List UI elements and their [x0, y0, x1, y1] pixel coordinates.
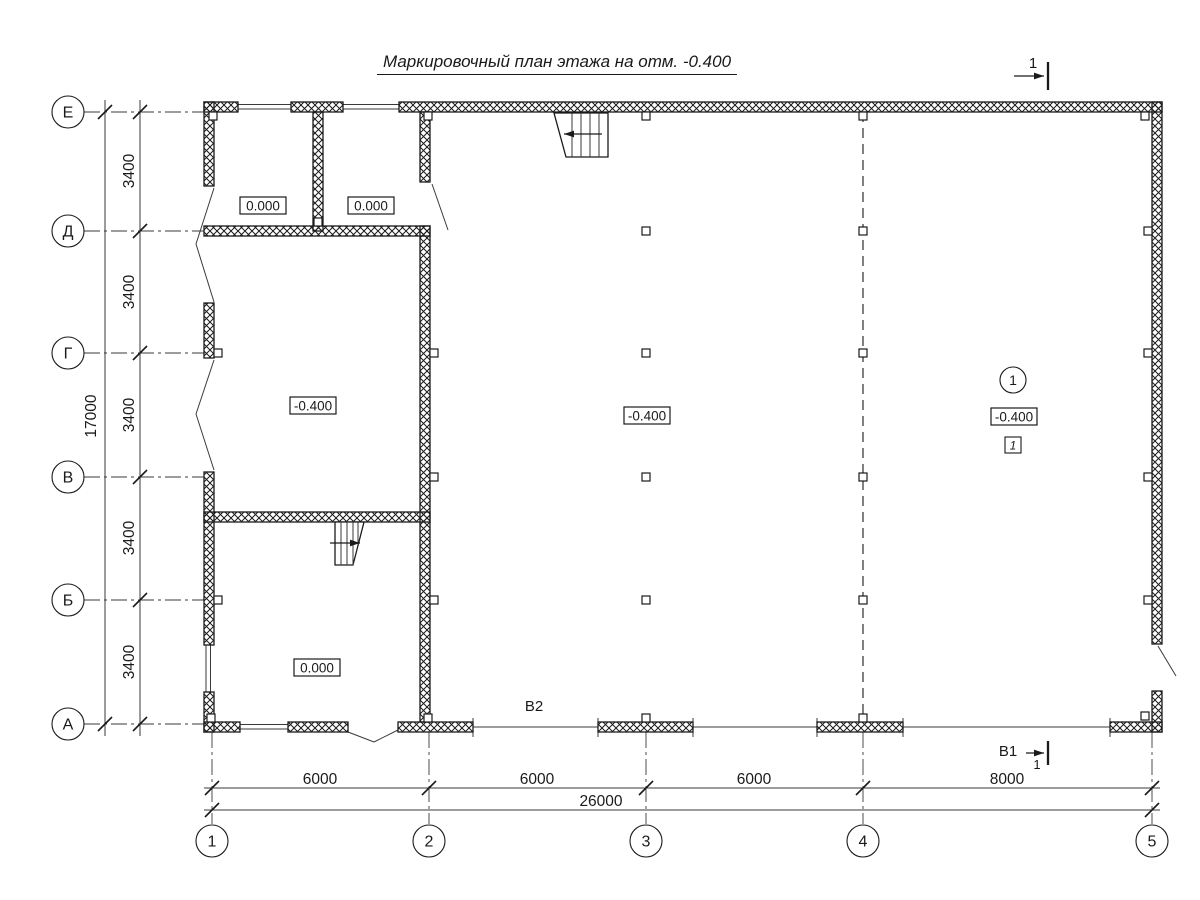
section-label-b2: В2: [525, 698, 543, 715]
grid-bubble-col-label: 5: [1148, 834, 1157, 851]
column-pilaster: [214, 596, 222, 604]
grid-bubble-col-label: 2: [425, 834, 434, 851]
wall-segment: [399, 102, 1162, 112]
column-pilaster: [424, 714, 432, 722]
column-pilaster: [642, 349, 650, 357]
section-mark-b1-number: 1: [1033, 757, 1040, 772]
zone-number-value: 1: [1009, 372, 1017, 388]
dim-value-vertical: 3400: [121, 153, 138, 188]
dim-value-horizontal: 6000: [737, 771, 772, 788]
wall-segment: [1152, 102, 1162, 644]
grid-bubble-row-label: В: [63, 470, 74, 487]
drawing-thin-line: [196, 414, 214, 470]
floor-plan-canvas: ЕДГВБА1234534003400340034003400170006000…: [0, 0, 1200, 900]
column-pilaster: [1141, 112, 1149, 120]
column-pilaster: [1144, 473, 1152, 481]
column-pilaster: [1144, 227, 1152, 235]
column-pilaster: [424, 112, 432, 120]
column-pilaster: [214, 349, 222, 357]
column-pilaster: [642, 473, 650, 481]
dim-value-horizontal: 6000: [303, 771, 338, 788]
elevation-mark-value: 0.000: [300, 661, 334, 676]
column-pilaster: [1144, 349, 1152, 357]
dim-value-horizontal: 6000: [520, 771, 555, 788]
grid-bubble-row-label: Г: [64, 346, 73, 363]
grid-bubble-col-label: 1: [208, 834, 217, 851]
wall-segment: [598, 722, 693, 732]
wall-segment: [420, 112, 430, 182]
wall-segment: [204, 303, 214, 358]
column-pilaster: [859, 714, 867, 722]
dim-total-vertical: 17000: [83, 394, 100, 437]
column-pilaster: [642, 112, 650, 120]
dim-value-horizontal: 8000: [990, 771, 1025, 788]
wall-segment: [204, 472, 214, 645]
elevation-mark-value: -0.400: [294, 399, 332, 414]
column-pilaster: [859, 112, 867, 120]
wall-segment: [204, 226, 430, 236]
grid-bubble-col-label: 3: [642, 834, 651, 851]
column-pilaster: [642, 596, 650, 604]
drawing-thin-line: [348, 732, 374, 742]
wall-segment: [204, 722, 240, 732]
column-pilaster: [207, 714, 215, 722]
drawing-thin-line: [196, 244, 214, 302]
elevation-mark-value: -0.400: [628, 409, 666, 424]
drawing-thin-line: [196, 360, 214, 414]
elevation-mark-value: 0.000: [246, 199, 280, 214]
wall-segment: [313, 112, 323, 231]
wall-segment: [817, 722, 903, 732]
drawing-thin-line: [1158, 646, 1176, 676]
wall-segment: [288, 722, 348, 732]
dim-value-vertical: 3400: [121, 274, 138, 309]
dim-total-horizontal: 26000: [579, 793, 622, 810]
section-direction-arrow-head: [1034, 73, 1044, 80]
grid-bubble-row-label: А: [63, 717, 74, 734]
elevation-mark-value: -0.400: [995, 410, 1033, 425]
column-pilaster: [859, 596, 867, 604]
grid-bubble-col-label: 4: [859, 834, 868, 851]
column-pilaster: [314, 218, 322, 226]
section-mark-b1-label: В1: [999, 743, 1017, 760]
section-direction-arrow-head: [1034, 750, 1044, 757]
page-title: Маркировочный план этажа на отм. -0.400: [377, 52, 737, 75]
column-pilaster: [642, 714, 650, 722]
column-pilaster: [430, 473, 438, 481]
plan-drawing: ЕДГВБА1234534003400340034003400170006000…: [0, 0, 1200, 900]
drawing-thin-line: [374, 730, 398, 742]
grid-bubble-row-label: Б: [63, 593, 74, 610]
dim-value-vertical: 3400: [121, 397, 138, 432]
drawing-thin-line: [432, 184, 448, 230]
elevation-mark-value: 0.000: [354, 199, 388, 214]
column-pilaster: [642, 227, 650, 235]
grid-bubble-row-label: Д: [63, 224, 74, 241]
wall-segment: [291, 102, 343, 112]
wall-segment: [398, 722, 473, 732]
section-mark-top-label: 1: [1029, 55, 1037, 72]
column-pilaster: [1141, 712, 1149, 720]
column-pilaster: [859, 473, 867, 481]
column-pilaster: [1144, 596, 1152, 604]
column-pilaster: [859, 227, 867, 235]
column-pilaster: [430, 596, 438, 604]
grid-bubble-row-label: Е: [63, 105, 74, 122]
dim-value-vertical: 3400: [121, 644, 138, 679]
wall-segment: [204, 512, 430, 522]
zone-type-value: 1: [1010, 439, 1017, 453]
dim-value-vertical: 3400: [121, 520, 138, 555]
column-pilaster: [859, 349, 867, 357]
wall-segment: [1110, 722, 1162, 732]
wall-segment: [420, 226, 430, 722]
column-pilaster: [430, 349, 438, 357]
column-pilaster: [209, 112, 217, 120]
